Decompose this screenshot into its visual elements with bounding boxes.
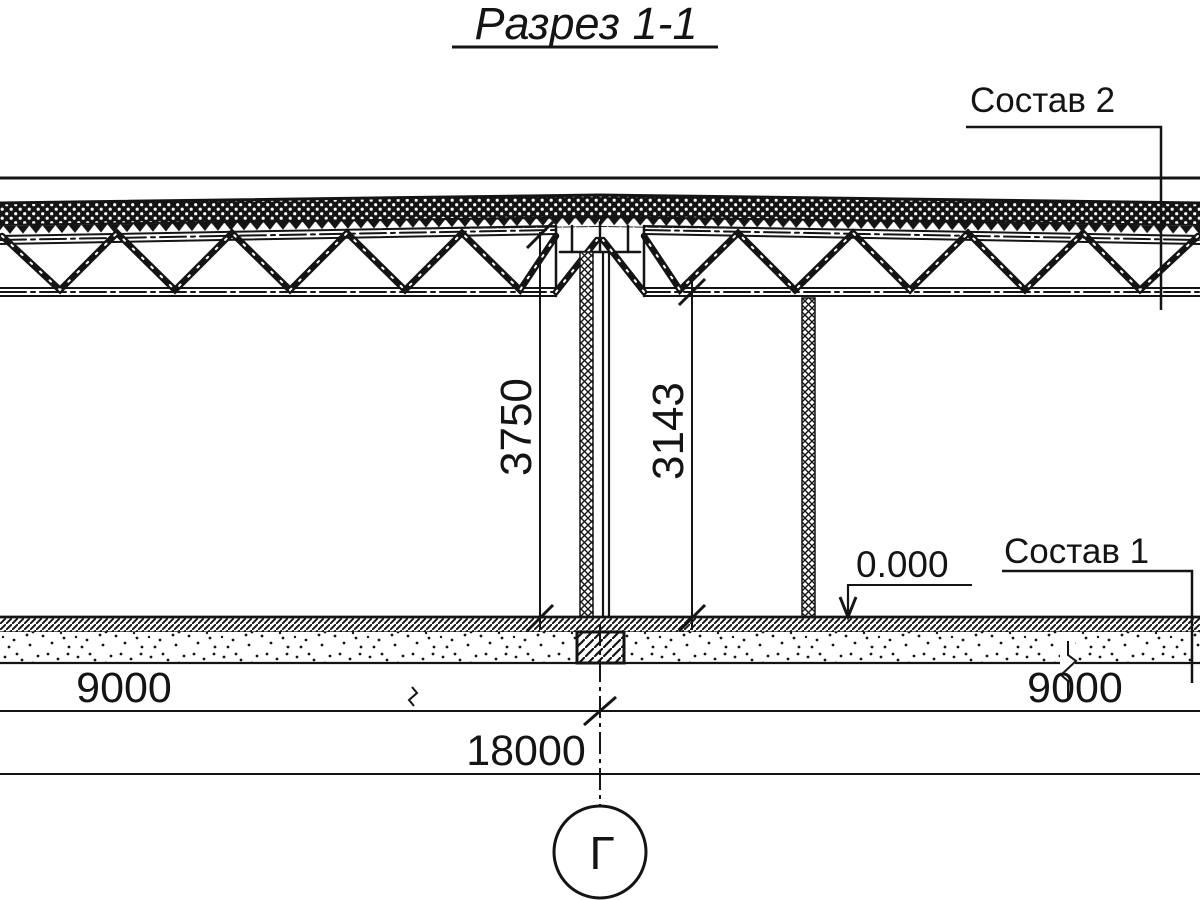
dim-text-18000: 18000 (466, 727, 586, 775)
roof-truss (0, 222, 1200, 296)
right-partition-wall (802, 298, 815, 617)
callout-floor-label: Состав 1 (1004, 532, 1149, 571)
center-column (580, 252, 609, 617)
dim-text-9000-right: 9000 (1027, 664, 1123, 712)
elevation-value: 0.000 (856, 544, 949, 585)
dim-text-9000-left: 9000 (76, 664, 172, 712)
axis-letter: Г (590, 827, 615, 879)
elevation-mark: 0.000 (840, 544, 972, 617)
dim-text-3143: 3143 (644, 382, 693, 480)
section-drawing: Разрез 1-1 (0, 0, 1200, 900)
drawing-title: Разрез 1-1 (475, 0, 698, 49)
ridge-bearing-detail (556, 222, 644, 292)
callout-roof-composition: Состав 2 (966, 81, 1161, 310)
callout-roof-label: Состав 2 (970, 81, 1115, 120)
center-partition-hatched (580, 252, 593, 617)
dim-text-3750: 3750 (492, 378, 541, 476)
title-block: Разрез 1-1 (452, 0, 718, 49)
section-drawing-sheet: Разрез 1-1 (0, 0, 1200, 900)
truss-bottom-chord-left (0, 288, 556, 296)
truss-bottom-chord-right (644, 288, 1200, 296)
slab-break-symbol-left (409, 687, 417, 706)
